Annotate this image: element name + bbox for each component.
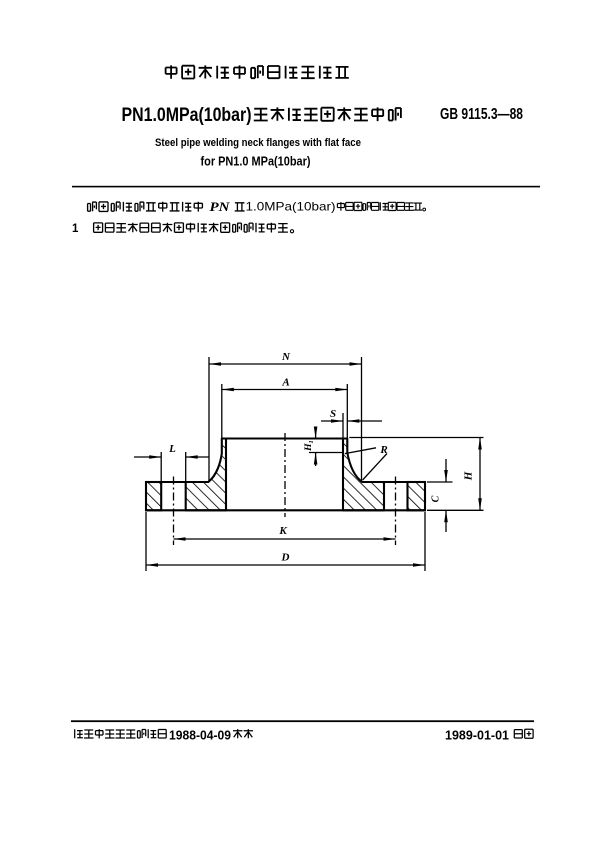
svg-text:PN: PN [210, 200, 231, 214]
svg-text:H1: H1 [304, 440, 315, 452]
svg-text:H: H [463, 471, 475, 481]
svg-text:R: R [379, 444, 387, 456]
svg-text:S: S [330, 408, 336, 420]
svg-text:K: K [278, 525, 287, 537]
svg-text:for PN1.0 MPa(10bar): for PN1.0 MPa(10bar) [201, 154, 311, 169]
svg-text:1: 1 [72, 223, 79, 235]
svg-text:L: L [168, 443, 176, 455]
svg-text:1988-04-09: 1988-04-09 [169, 728, 231, 743]
svg-text:1.0MPa(10bar): 1.0MPa(10bar) [246, 201, 336, 214]
svg-text:PN1.0MPa(10bar): PN1.0MPa(10bar) [122, 105, 252, 126]
svg-text:C: C [431, 495, 442, 502]
svg-text:D: D [281, 552, 290, 564]
svg-text:Steel pipe welding neck flange: Steel pipe welding neck flanges with fla… [155, 137, 361, 149]
svg-text:1989-01-01: 1989-01-01 [445, 728, 509, 743]
svg-text:A: A [281, 377, 289, 389]
svg-text:GB 9115.3—88: GB 9115.3—88 [440, 106, 523, 123]
svg-text:N: N [281, 351, 291, 363]
